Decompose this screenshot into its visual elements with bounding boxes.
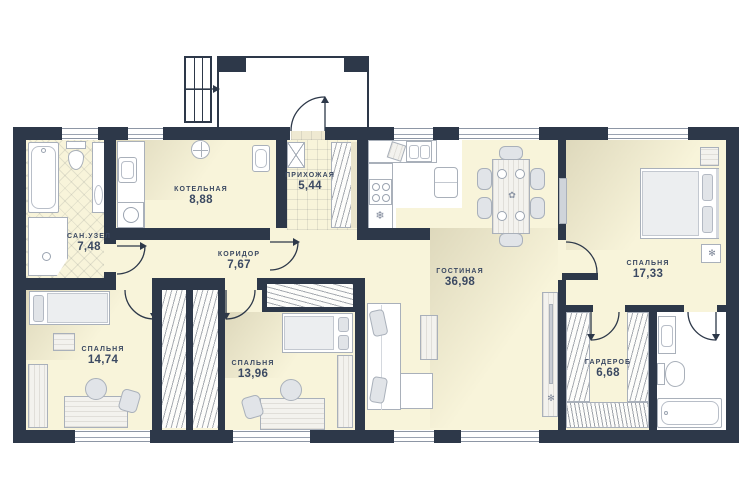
- window: [608, 128, 688, 139]
- room-label-sanuzel: САН.УЗЕЛ 7,48: [67, 233, 111, 254]
- dining-chair: [477, 168, 492, 190]
- room-name: СПАЛЬНЯ: [232, 360, 275, 367]
- entry-stairs: [184, 56, 212, 123]
- wall: [726, 127, 739, 443]
- desk-chair: [85, 378, 107, 400]
- window: [459, 128, 539, 139]
- room-area: 6,68: [585, 368, 631, 380]
- room-label-spalnya-3: СПАЛЬНЯ 13,96: [232, 360, 275, 381]
- desk: [260, 398, 325, 430]
- closet-hatch: [193, 290, 218, 428]
- room-area: 36,98: [436, 277, 483, 289]
- wall: [115, 228, 270, 240]
- wall: [657, 305, 684, 312]
- room-area: 7,67: [218, 260, 260, 272]
- water-heater: [252, 145, 270, 172]
- wall: [357, 228, 430, 240]
- window: [394, 128, 433, 139]
- wall: [13, 430, 75, 443]
- room-name: САН.УЗЕЛ: [67, 233, 111, 240]
- wall: [717, 305, 726, 312]
- boiler: [191, 140, 210, 159]
- room-label-spalnya-1: СПАЛЬНЯ 17,33: [627, 260, 670, 281]
- desk-chair: [280, 379, 302, 401]
- nightstand: [53, 333, 75, 351]
- room-label-prihozhaya: ПРИХОЖАЯ 5,44: [285, 172, 335, 193]
- room-label-kotelnaya: КОТЕЛЬНАЯ 8,88: [174, 186, 228, 207]
- dining-chair: [530, 168, 545, 190]
- door-leaf-bedroom1: [562, 273, 598, 280]
- window: [394, 431, 434, 442]
- fridge: [434, 167, 458, 198]
- room-name: СПАЛЬНЯ: [627, 260, 670, 267]
- closet-hatch: [162, 290, 186, 428]
- shoe-cabinet: [287, 142, 305, 168]
- porch-pillar-left: [218, 57, 246, 72]
- room-area: 8,88: [174, 195, 228, 207]
- freezer-icon: ❄: [370, 209, 390, 222]
- flower-icon: ✿: [506, 190, 518, 201]
- stove: [369, 179, 392, 205]
- room-area: 5,44: [285, 181, 335, 193]
- wall: [433, 127, 459, 140]
- radiator: [559, 178, 567, 224]
- bed: [640, 168, 719, 239]
- window: [128, 128, 163, 139]
- wall: [150, 430, 233, 443]
- closet: [28, 364, 48, 428]
- room-name: ГАРДЕРОБ: [585, 359, 631, 366]
- room-label-garderob: ГАРДЕРОБ 6,68: [585, 359, 631, 380]
- room-label-gostinaya: ГОСТИНАЯ 36,98: [436, 268, 483, 289]
- wall: [566, 305, 593, 312]
- room-name: КОРИДОР: [218, 251, 260, 258]
- dining-chair: [499, 146, 523, 160]
- dining-chair: [477, 197, 492, 219]
- entry-threshold: [291, 131, 325, 140]
- plant-icon: ✻: [545, 393, 557, 404]
- shower: [28, 217, 68, 276]
- room-area: 13,96: [232, 369, 275, 381]
- room-area: 14,74: [82, 355, 125, 367]
- coffee-table: [420, 315, 438, 360]
- wardrobe-rack: [566, 312, 590, 402]
- wall: [539, 127, 608, 140]
- floor-plan: ❄ ✿ ✻: [0, 0, 752, 502]
- dresser: [337, 355, 353, 428]
- wall: [539, 430, 739, 443]
- wall: [310, 430, 394, 443]
- toilet: [665, 361, 685, 387]
- window: [75, 431, 150, 442]
- built-in-closet: [267, 284, 353, 307]
- washing-machine: [117, 202, 144, 228]
- wall: [218, 290, 225, 430]
- wall: [152, 278, 225, 290]
- nightstand: ✻: [701, 244, 721, 263]
- bathtub: [657, 398, 722, 428]
- dining-table: ✿: [492, 159, 530, 234]
- nightstand: [700, 147, 719, 166]
- wall: [186, 290, 193, 430]
- bathroom-vanity: [658, 316, 676, 354]
- wall: [152, 290, 162, 430]
- kitchen-sink: [406, 141, 432, 162]
- tv-console: ✻: [542, 292, 558, 417]
- wall: [649, 305, 657, 430]
- wardrobe-rail: [566, 402, 649, 428]
- room-label-koridor: КОРИДОР 7,67: [218, 251, 260, 272]
- room-label-spalnya-2: СПАЛЬНЯ 14,74: [82, 346, 125, 367]
- plant-icon: ✻: [706, 248, 718, 259]
- room-area: 7,48: [67, 242, 111, 254]
- room-name: СПАЛЬНЯ: [82, 346, 125, 353]
- window: [62, 128, 98, 139]
- room-name: ГОСТИНАЯ: [436, 268, 483, 275]
- toilet-tank: [657, 363, 665, 385]
- wall: [558, 280, 566, 430]
- wall: [98, 127, 128, 140]
- toilet-tank: [66, 141, 86, 149]
- wall: [434, 430, 461, 443]
- room-area: 17,33: [627, 269, 670, 281]
- bathtub: [28, 142, 59, 213]
- room-name: ПРИХОЖАЯ: [285, 172, 335, 179]
- wardrobe-rack: [627, 312, 649, 402]
- sofa-chaise: [400, 373, 433, 409]
- wall: [163, 127, 290, 140]
- porch-pillar-right: [344, 57, 369, 72]
- dining-chair: [530, 197, 545, 219]
- wall: [357, 127, 368, 240]
- dining-chair: [499, 233, 523, 247]
- bed: [282, 313, 353, 353]
- laundry-sink: [118, 157, 137, 183]
- window: [233, 431, 310, 442]
- bed: [29, 291, 110, 325]
- window: [461, 431, 539, 442]
- room-name: КОТЕЛЬНАЯ: [174, 186, 228, 193]
- wall: [13, 278, 113, 290]
